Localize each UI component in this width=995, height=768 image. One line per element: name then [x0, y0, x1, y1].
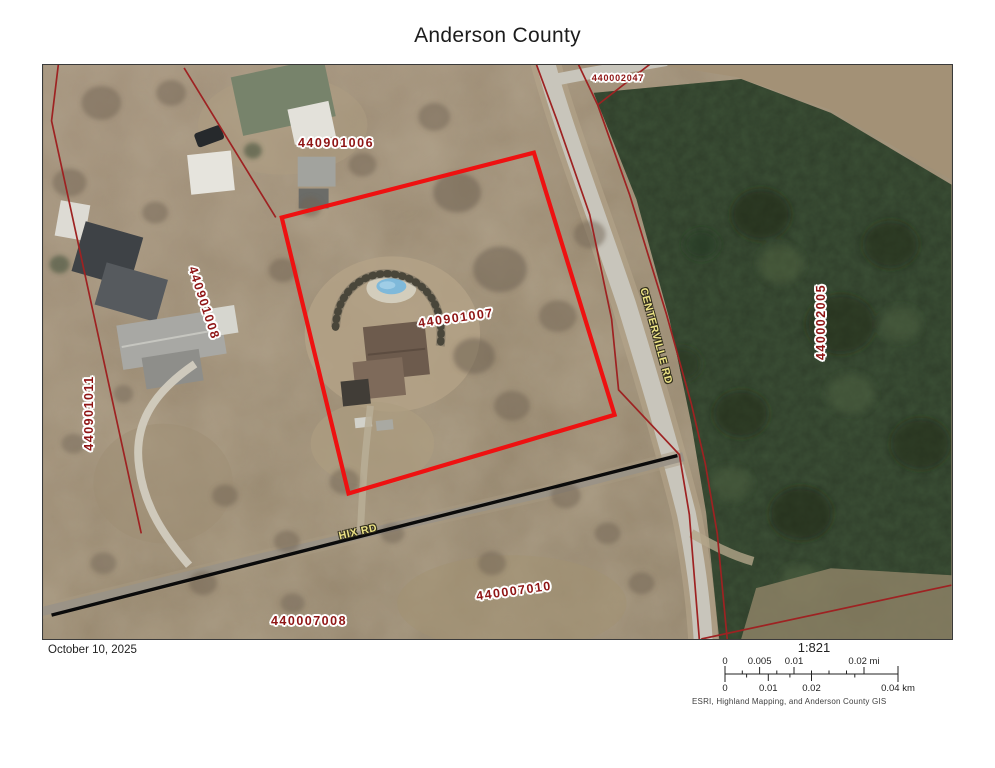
- parcel-label-440002047: 440002047: [592, 73, 644, 83]
- scalebar-mi-label-1: 0.005: [748, 656, 772, 667]
- parcel-label-440007008: 440007008: [271, 614, 347, 628]
- parcel-label-440901006: 440901006: [298, 136, 374, 150]
- scalebar-km-label-0: 0: [722, 683, 727, 694]
- scalebar-mi-label-2: 0.01: [785, 656, 804, 667]
- parcel-label-440002005: 440002005: [814, 284, 828, 360]
- map-export-page: Anderson County: [0, 0, 995, 768]
- parcel-label-440901011: 440901011: [82, 375, 96, 450]
- scalebar-km-label-1: 0.01: [759, 683, 778, 694]
- scalebar-km-label-2: 0.02: [802, 683, 821, 694]
- page-title: Anderson County: [0, 24, 995, 48]
- scalebar-mi-label-0: 0: [722, 656, 727, 667]
- scalebar-km-label-3: 0.04 km: [881, 683, 915, 694]
- map-date: October 10, 2025: [48, 644, 137, 656]
- scale-bar: 0 0.005 0.01 0.02 mi 0 0.01 0.02 0.04 km: [716, 656, 930, 694]
- map-frame: 440901006 440002047 440901008 440901011 …: [42, 64, 953, 640]
- scalebar-mi-label-3: 0.02 mi: [848, 656, 879, 667]
- attribution-text: ESRI, Highland Mapping, and Anderson Cou…: [692, 697, 886, 706]
- scale-ratio: 1:821: [718, 640, 910, 655]
